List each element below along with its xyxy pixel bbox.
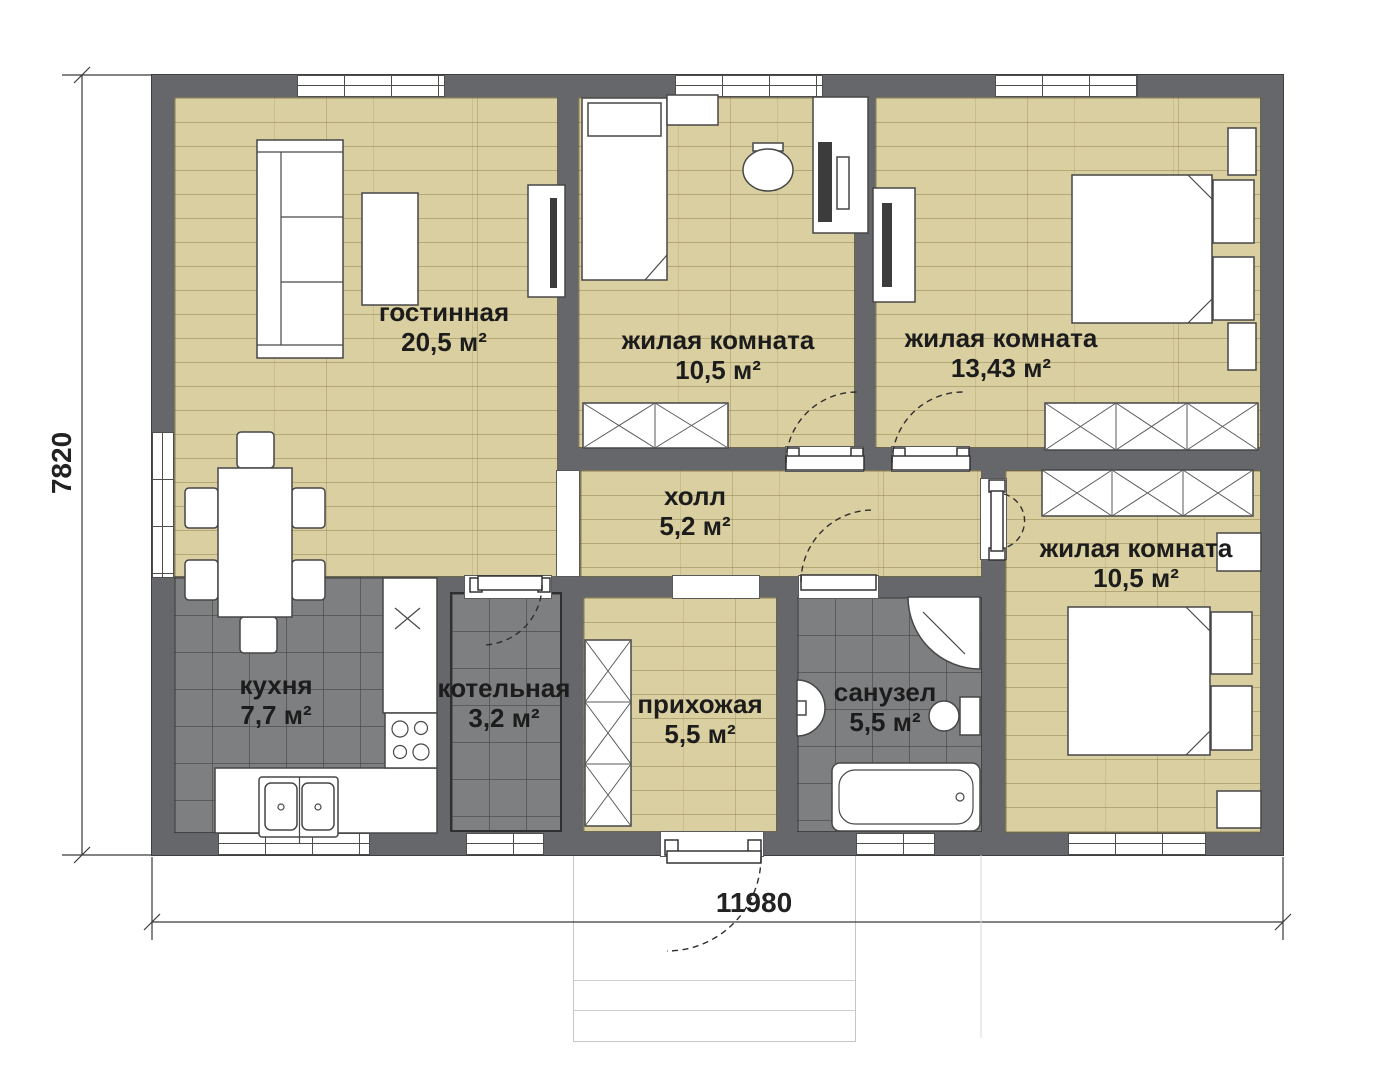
- room-name: прихожая: [637, 689, 762, 719]
- corner-shower-icon: [908, 597, 980, 669]
- room-name: кухня: [239, 670, 312, 700]
- nightstand: [1228, 128, 1256, 175]
- tv-panel-bedroom-right: [873, 188, 915, 302]
- door-bedroom-right: [892, 392, 970, 470]
- room-name: холл: [659, 481, 730, 511]
- room-area: 5,5 м²: [637, 719, 762, 749]
- double-bed-right: [1072, 175, 1254, 323]
- room-area: 5,5 м²: [834, 707, 937, 737]
- wardrobe-entry: [585, 640, 631, 826]
- office-chair: [743, 143, 793, 191]
- label-bedroom-right: жилая комната 13,43 м²: [905, 323, 1098, 383]
- wardrobe-bedroom-middle: [583, 403, 728, 448]
- desk-with-computer: [813, 97, 868, 233]
- room-name: жилая комната: [905, 323, 1098, 353]
- cabinet: [1217, 791, 1261, 828]
- door-bedroom-bottom: [989, 480, 1025, 560]
- label-kitchen: кухня 7,7 м²: [239, 670, 312, 730]
- nightstand: [667, 95, 718, 125]
- room-area: 20,5 м²: [379, 327, 509, 357]
- door-bathroom: [801, 510, 876, 590]
- room-name: жилая комната: [1040, 533, 1233, 563]
- bathtub-icon: [832, 763, 980, 831]
- tv-panel-living: [528, 185, 565, 297]
- label-bedroom-middle: жилая комната 10,5 м²: [622, 325, 815, 385]
- room-name: жилая комната: [622, 325, 815, 355]
- room-area: 10,5 м²: [622, 355, 815, 385]
- dimension-width: 11980: [716, 887, 792, 919]
- room-area: 10,5 м²: [1040, 563, 1233, 593]
- label-bathroom: санузел 5,5 м²: [834, 677, 937, 737]
- label-living-room: гостинная 20,5 м²: [379, 297, 509, 357]
- room-area: 5,2 м²: [659, 511, 730, 541]
- door-bedroom-middle: [786, 392, 864, 470]
- toilet-icon: [929, 697, 980, 735]
- door-boiler: [470, 576, 550, 645]
- room-name: котельная: [438, 673, 571, 703]
- stove-icon: [385, 713, 437, 768]
- label-bedroom-bottom: жилая комната 10,5 м²: [1040, 533, 1233, 593]
- label-boiler: котельная 3,2 м²: [438, 673, 571, 733]
- wall-sink-icon: [797, 680, 825, 736]
- bed-single: [582, 98, 667, 280]
- label-hall: холл 5,2 м²: [659, 481, 730, 541]
- nightstand: [1228, 323, 1256, 370]
- label-entry: прихожая 5,5 м²: [637, 689, 762, 749]
- room-name: санузел: [834, 677, 937, 707]
- room-area: 3,2 м²: [438, 703, 571, 733]
- room-area: 13,43 м²: [905, 353, 1098, 383]
- dimension-height: 7820: [46, 432, 78, 494]
- floor-plan: гостинная 20,5 м² жилая комната 10,5 м² …: [0, 0, 1373, 1080]
- coffee-table: [362, 193, 418, 305]
- sofa: [257, 140, 343, 358]
- wardrobe-bedroom-bottom: [1042, 470, 1253, 516]
- wardrobe-bedroom-right: [1045, 403, 1258, 450]
- kitchen-sink-icon: [259, 777, 338, 843]
- dining-table-set: [185, 432, 325, 653]
- room-area: 7,7 м²: [239, 700, 312, 730]
- room-name: гостинная: [379, 297, 509, 327]
- double-bed-bottom: [1068, 607, 1252, 755]
